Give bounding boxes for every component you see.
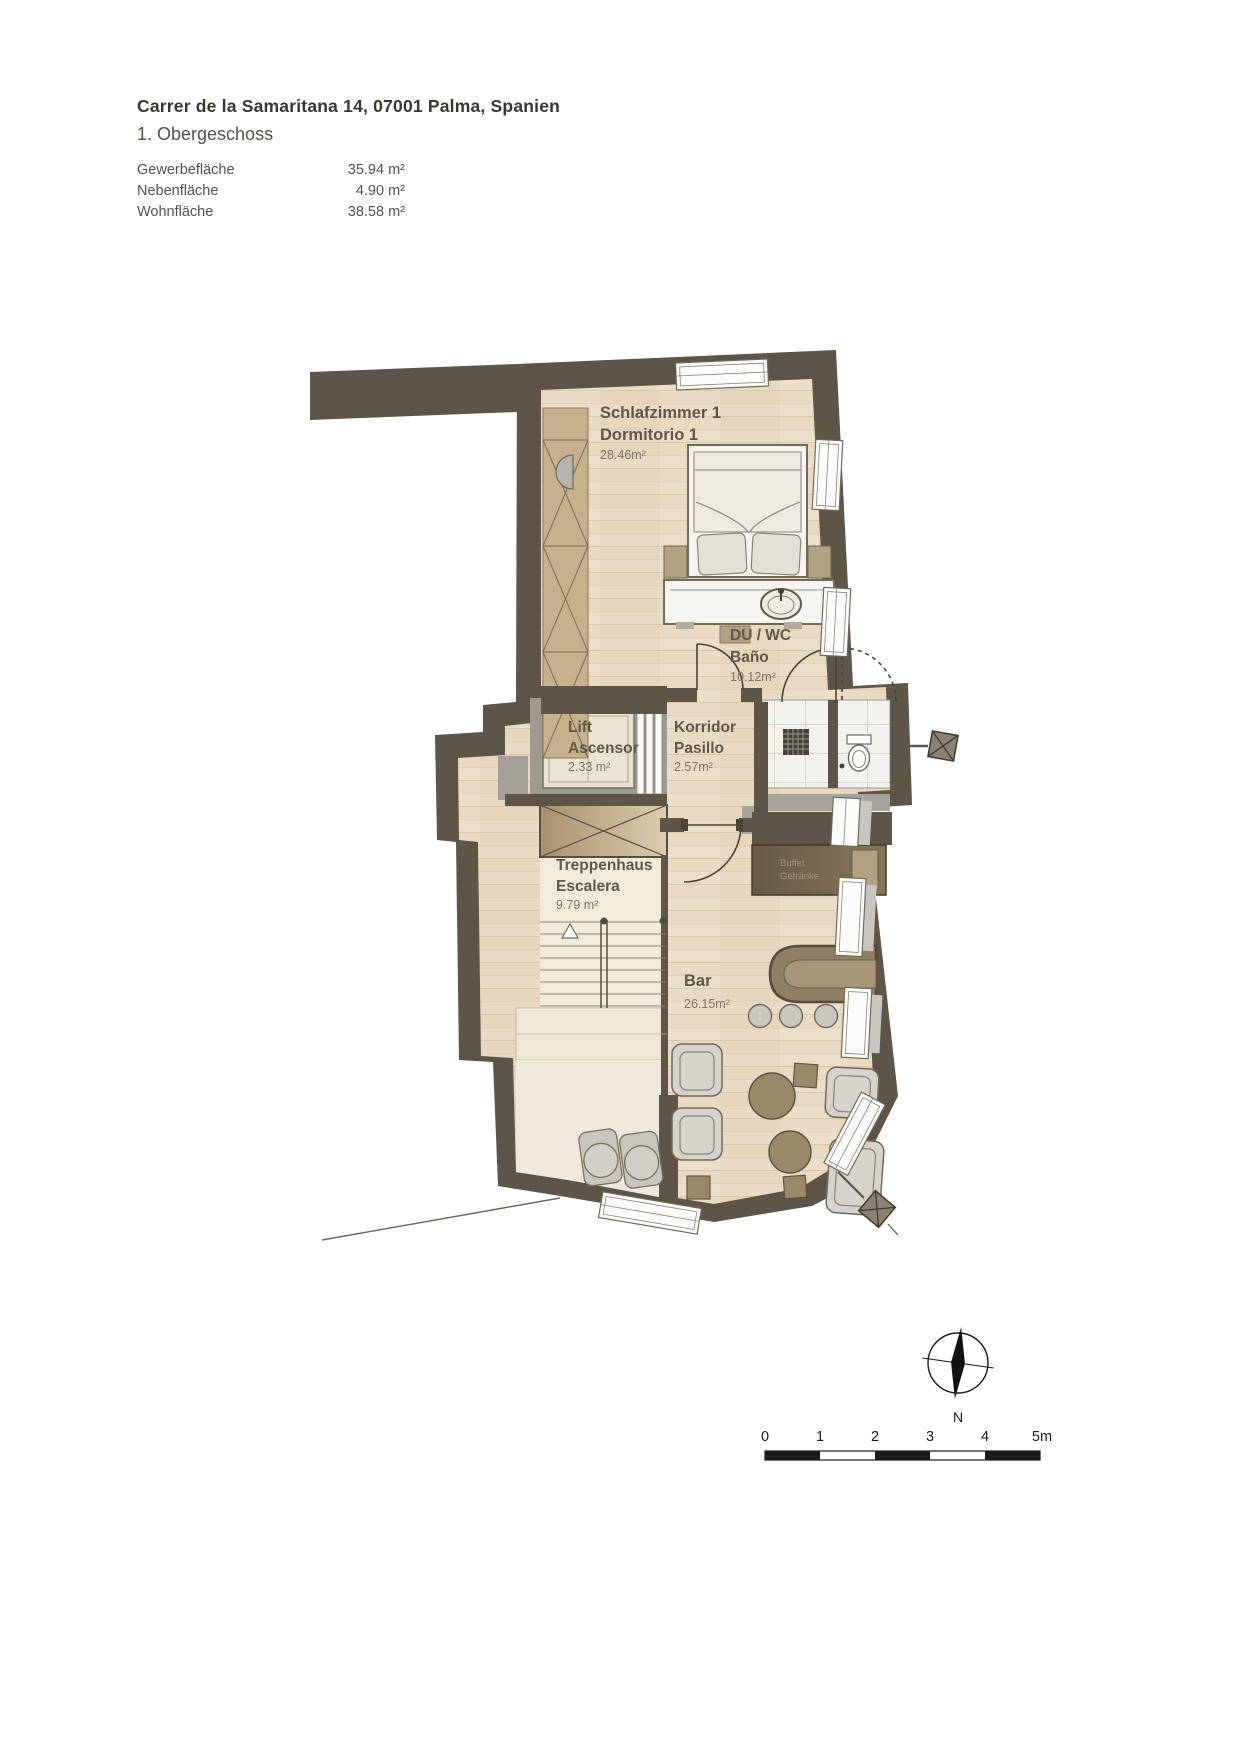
bed-duvet (694, 452, 801, 532)
neighbor-wall-arm (310, 364, 517, 420)
railing-post (660, 918, 667, 925)
svg-text:9.79 m²: 9.79 m² (556, 898, 598, 912)
svg-text:Pasillo: Pasillo (674, 740, 724, 757)
side-table (687, 1176, 710, 1199)
shower-drain-icon (783, 729, 809, 755)
window (831, 797, 872, 847)
scale-tick-label: 4 (981, 1429, 989, 1445)
window (820, 587, 851, 656)
svg-text:Korridor: Korridor (674, 719, 736, 736)
svg-text:Ascensor: Ascensor (568, 740, 639, 757)
side-table (783, 1175, 806, 1198)
svg-text:26.15m²: 26.15m² (684, 997, 730, 1011)
floor-plan-drawing: Buffet Getränke (0, 0, 1241, 1754)
window (835, 877, 877, 957)
scale-tick-label: 1 (816, 1429, 824, 1445)
svg-text:10.12m²: 10.12m² (730, 670, 776, 684)
svg-text:Escalera: Escalera (556, 878, 620, 895)
scale-tick-label: 3 (926, 1429, 934, 1445)
bath-divider-wall (828, 700, 838, 788)
scale-tick-label: 5m (1032, 1429, 1052, 1445)
window (812, 439, 843, 510)
lift-door-slat (655, 704, 662, 794)
compass-needle (948, 1327, 968, 1400)
pillow (697, 533, 747, 575)
svg-text:Lift: Lift (568, 719, 592, 736)
marker-symbol (928, 731, 958, 761)
lift-machine-block (498, 756, 528, 800)
svg-text:28.46m²: 28.46m² (600, 448, 646, 462)
bar-stool (815, 1005, 838, 1028)
window (841, 987, 883, 1059)
buffet-label-1: Buffet (780, 858, 805, 869)
nightstand (808, 546, 831, 578)
bed (664, 445, 831, 578)
svg-text:Bar: Bar (684, 972, 712, 990)
svg-text:Treppenhaus: Treppenhaus (556, 857, 652, 874)
round-table (749, 1073, 795, 1119)
window (675, 359, 768, 390)
bar-stool (780, 1005, 803, 1028)
svg-text:2.33 m²: 2.33 m² (568, 760, 610, 774)
svg-text:Baño: Baño (730, 649, 769, 666)
tap-icon (778, 588, 784, 594)
compass-north-label: N (953, 1409, 963, 1425)
scale-bar: 0 1 2 3 4 5m (761, 1429, 1052, 1460)
lift-door-slat (646, 704, 653, 794)
svg-text:2.57m²: 2.57m² (674, 760, 713, 774)
svg-text:Schlafzimmer 1: Schlafzimmer 1 (600, 404, 721, 422)
side-table (793, 1063, 818, 1088)
bar-stool (749, 1005, 772, 1028)
scale-tick-label: 0 (761, 1429, 769, 1445)
buffet-label-2: Getränke (780, 871, 819, 882)
round-table (769, 1131, 811, 1173)
floorplan-page: Carrer de la Samaritana 14, 07001 Palma,… (0, 0, 1241, 1754)
pillow (751, 533, 801, 575)
railing-post (601, 918, 608, 925)
compass: N (922, 1327, 993, 1425)
scale-tick-label: 2 (871, 1429, 879, 1445)
svg-text:Dormitorio 1: Dormitorio 1 (600, 426, 698, 444)
bath-tiles (762, 700, 890, 788)
stairwell-void (540, 805, 667, 857)
nightstand (664, 546, 687, 578)
svg-text:DU / WC: DU / WC (730, 627, 791, 644)
site-boundary-line (322, 1198, 560, 1240)
